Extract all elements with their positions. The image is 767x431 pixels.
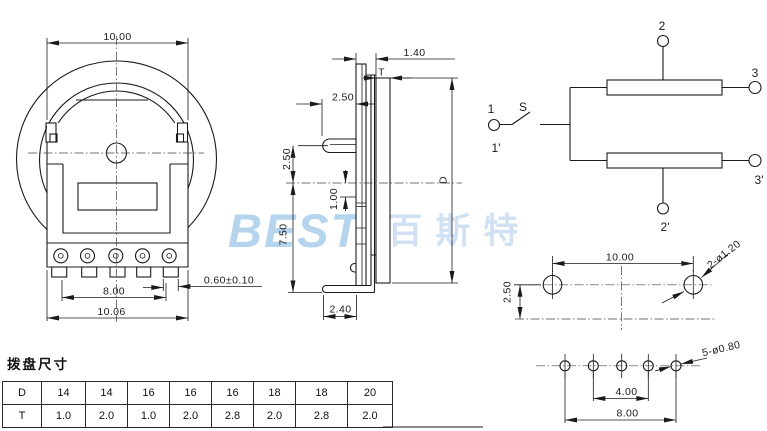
pcb-layout-mounting: 10.00 2.50 2-ø1.20 <box>502 238 744 330</box>
dim-pcb-row-offset: 2.50 <box>502 281 542 319</box>
plate-tab <box>350 264 356 273</box>
cell: 2.0 <box>254 405 296 428</box>
junction-wires <box>570 88 607 161</box>
terminal-3-label: 3 <box>752 66 759 80</box>
side-view: 1.40 T 2.50 2.50 <box>278 47 463 320</box>
cell: 20 <box>348 382 393 405</box>
dial-size-table: D 14 14 16 16 16 18 18 20 T 1.0 2.0 1.0 … <box>2 381 393 428</box>
spacer <box>366 75 376 293</box>
drawing-canvas: 10.00 8.00 10.06 0.60±0.10 <box>0 0 767 431</box>
svg-text:0.60±0.10: 0.60±0.10 <box>204 275 254 287</box>
terminal-wires <box>663 47 749 203</box>
cell: 1.0 <box>42 405 86 428</box>
row-label: D <box>3 382 42 405</box>
cell: 14 <box>42 382 86 405</box>
dim-front-pin-span: 8.00 <box>62 280 166 301</box>
dim-side-thickness: T <box>363 67 412 79</box>
table-row-D: D 14 14 16 16 16 18 18 20 <box>3 382 393 405</box>
svg-text:2.50: 2.50 <box>502 281 514 303</box>
terminal-2-circle <box>658 36 669 47</box>
svg-text:5-ø0.80: 5-ø0.80 <box>701 339 742 359</box>
svg-text:10.00: 10.00 <box>606 252 634 264</box>
svg-text:2-ø1.20: 2-ø1.20 <box>705 238 743 271</box>
cell: 18 <box>254 382 296 405</box>
terminal-3-circle <box>749 82 761 94</box>
table-title: 拨盘尺寸 <box>7 353 69 373</box>
svg-text:8.00: 8.00 <box>103 286 125 298</box>
mounting-foot <box>323 286 375 293</box>
svg-text:4.00: 4.00 <box>615 386 637 398</box>
dim-pin-pitch: 4.00 <box>593 372 648 401</box>
svg-text:10.06: 10.06 <box>97 306 125 318</box>
cell: 2.8 <box>296 405 348 428</box>
row-label: T <box>3 405 42 428</box>
label-pin-hole-spec: 5-ø0.80 <box>655 339 742 371</box>
terminal-2p-circle <box>658 203 669 214</box>
switch-lever <box>500 112 571 125</box>
dim-side-foot-depth: 2.40 <box>324 295 357 320</box>
terminal-pins <box>52 267 179 277</box>
body-fill <box>47 123 188 267</box>
terminal-1-circle <box>489 120 500 131</box>
svg-text:10.00: 10.00 <box>103 31 131 43</box>
cell: 2.0 <box>348 405 393 428</box>
switch-label: S <box>519 100 527 114</box>
terminal-3p-circle <box>749 155 761 167</box>
resistor-element-top <box>607 80 722 95</box>
cell: 16 <box>212 382 254 405</box>
knurled-wheel <box>376 78 390 283</box>
svg-text:8.00: 8.00 <box>616 408 638 420</box>
pcb-layout-pins: 5-ø0.80 4.00 8.00 <box>536 339 742 423</box>
svg-text:1.00: 1.00 <box>328 188 340 210</box>
svg-text:7.50: 7.50 <box>278 223 290 245</box>
terminal-3p-label: 3' <box>755 173 764 187</box>
dim-pcb-hole-span: 10.00 <box>553 252 694 273</box>
dim-side-wiper-offset: 1.00 <box>328 170 356 211</box>
cell: 2.8 <box>212 405 254 428</box>
bracket-plate <box>356 64 366 286</box>
cell: 18 <box>296 382 348 405</box>
terminal-1-label: 1 <box>488 102 495 116</box>
svg-text:2.50: 2.50 <box>281 148 293 170</box>
cell: 2.0 <box>170 405 212 428</box>
svg-text:2.50: 2.50 <box>332 92 354 104</box>
terminal-1p-label: 1' <box>492 141 501 155</box>
schematic: 1 1' S 2 3 3' 2' <box>488 19 764 234</box>
cell: 16 <box>170 382 212 405</box>
resistor-element-bottom <box>607 153 722 168</box>
terminal-2-label: 2 <box>659 19 666 33</box>
dim-front-top-width: 10.00 <box>47 31 188 120</box>
dim-side-protrusion: 1.40 <box>332 47 455 78</box>
terminal-2p-label: 2' <box>661 220 670 234</box>
svg-text:1.40: 1.40 <box>403 47 425 59</box>
label-mount-hole-spec: 2-ø1.20 <box>662 238 743 303</box>
cell: 14 <box>86 382 128 405</box>
drawing-sheet: BEST百斯特 <box>0 0 767 431</box>
cell: 16 <box>128 382 170 405</box>
dim-side-hub-offset: 2.50 <box>281 146 328 183</box>
svg-text:D: D <box>438 176 450 184</box>
dim-side-below-center: 7.50 <box>278 183 323 293</box>
dim-front-pin-thickness: 0.60±0.10 <box>143 275 262 292</box>
cell: 2.0 <box>86 405 128 428</box>
table-row-T: T 1.0 2.0 1.0 2.0 2.8 2.0 2.8 2.0 <box>3 405 393 428</box>
dim-side-diameter: D <box>392 78 458 283</box>
svg-text:T: T <box>378 67 385 79</box>
cell: 1.0 <box>128 405 170 428</box>
svg-text:2.40: 2.40 <box>329 304 351 316</box>
front-view: 10.00 8.00 10.06 0.60±0.10 <box>17 31 263 322</box>
